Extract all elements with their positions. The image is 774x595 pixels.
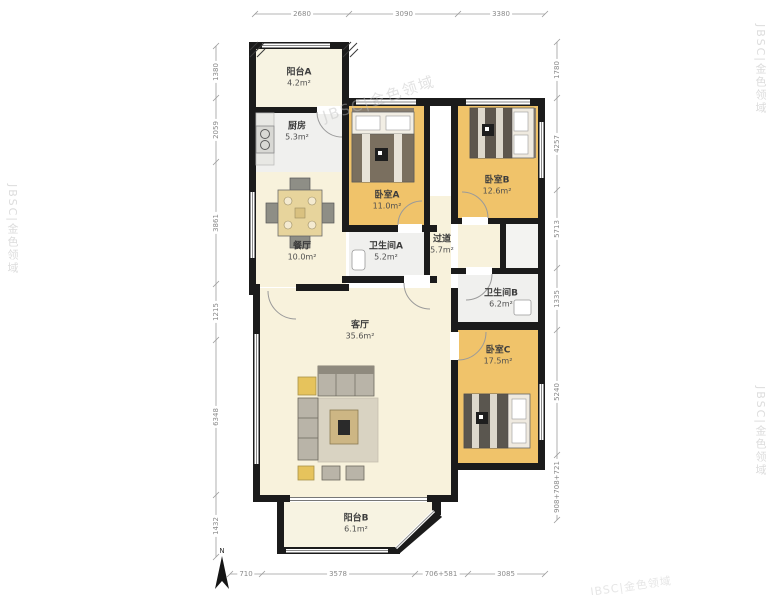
dim-left-0: 1380 [212, 61, 220, 83]
dim-right-2: 5713 [553, 218, 561, 240]
room-label-bath-b: 卫生间B6.2m² [484, 288, 518, 309]
dim-left-4: 6348 [212, 406, 220, 428]
floor-plan: 阳台A4.2m² 厨房5.3m² 餐厅10.0m² 卧室A11.0m² 卧室B1… [0, 0, 774, 595]
room-label-kitchen: 厨房5.3m² [285, 121, 309, 142]
dim-bottom-2: 706+581 [423, 570, 460, 578]
dim-top-0: 2680 [291, 10, 313, 18]
room-label-bedroom-c: 卧室C17.5m² [484, 345, 513, 366]
dim-bottom-1: 3578 [327, 570, 349, 578]
north-arrow-icon [215, 556, 229, 589]
room-label-bath-a: 卫生间A5.2m² [369, 241, 403, 262]
dim-right-0: 1780 [553, 59, 561, 81]
dim-left-2: 3861 [212, 212, 220, 234]
dim-left-1: 2059 [212, 119, 220, 141]
compass-n-label: N [219, 547, 224, 555]
room-closet [506, 224, 538, 268]
dim-top-1: 3090 [393, 10, 415, 18]
dim-right-4: 5240 [553, 381, 561, 403]
furniture-kitchen [256, 113, 274, 165]
dim-left-3: 1215 [212, 301, 220, 323]
dim-right-5: 908+708+721 [553, 459, 561, 515]
dim-top-2: 3380 [490, 10, 512, 18]
dim-right-1: 4257 [553, 133, 561, 155]
furniture-bed-a [352, 108, 414, 182]
dim-bottom-0: 710 [237, 570, 254, 578]
room-label-bedroom-a: 卧室A11.0m² [373, 190, 402, 211]
room-label-bedroom-b: 卧室B12.6m² [483, 175, 512, 196]
dim-left-5: 1432 [212, 515, 220, 537]
furniture-bed-c [464, 394, 530, 448]
room-label-living: 客厅35.6m² [346, 320, 375, 341]
room-label-hallway: 过道5.7m² [430, 234, 454, 255]
room-hall-ext [458, 224, 500, 268]
dim-right-3: 1335 [553, 288, 561, 310]
dim-bottom-3: 3085 [495, 570, 517, 578]
room-label-balcony-b: 阳台B6.1m² [344, 513, 369, 534]
furniture-bed-b [470, 108, 536, 158]
room-label-dining: 餐厅10.0m² [288, 241, 317, 262]
room-label-balcony-a: 阳台A4.2m² [287, 67, 312, 88]
floorplan-drawing [0, 0, 774, 595]
